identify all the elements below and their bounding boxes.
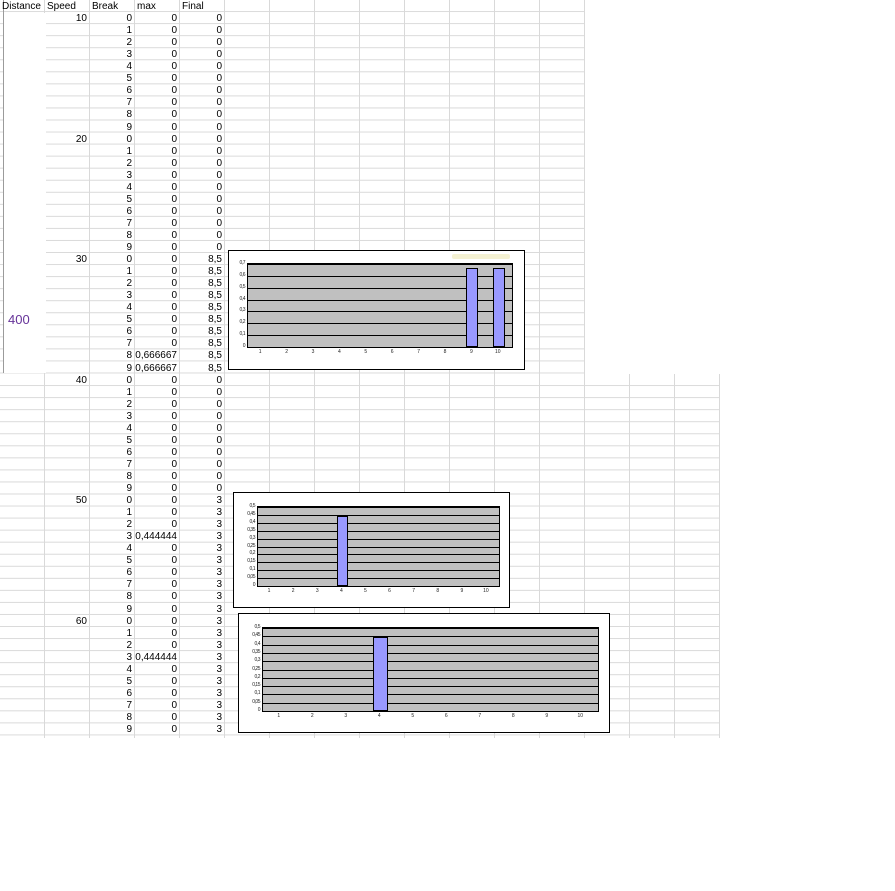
cell-final[interactable]: 8,5 bbox=[180, 290, 222, 302]
cell-final[interactable]: 8,5 bbox=[180, 363, 222, 375]
header-final[interactable]: Final bbox=[182, 1, 225, 13]
cell-final[interactable]: 0 bbox=[180, 375, 222, 387]
y-axis-tick-label: 0,7 bbox=[231, 261, 245, 266]
chart-gridline bbox=[263, 694, 598, 695]
chart-plot-area bbox=[257, 506, 500, 587]
cell-max[interactable]: 0 bbox=[135, 122, 177, 134]
chart-gridline bbox=[258, 523, 499, 524]
cell-max[interactable]: 0 bbox=[135, 495, 177, 507]
cell-final[interactable]: 0 bbox=[180, 49, 222, 61]
cell-break[interactable]: 2 bbox=[90, 278, 132, 290]
x-axis-tick-label: 3 bbox=[300, 350, 326, 355]
bar-break-4 bbox=[337, 516, 348, 586]
cell-speed[interactable]: 50 bbox=[45, 495, 87, 507]
cell-final[interactable]: 3 bbox=[180, 652, 222, 664]
cell-final[interactable]: 0 bbox=[180, 387, 222, 399]
x-axis-tick-label: 8 bbox=[432, 350, 458, 355]
cell-max[interactable]: 0 bbox=[135, 194, 177, 206]
cell-final[interactable]: 8,5 bbox=[180, 314, 222, 326]
cell-break[interactable]: 3 bbox=[90, 411, 132, 423]
y-axis-tick-label: 0,6 bbox=[231, 273, 245, 278]
chart-gridline bbox=[263, 670, 598, 671]
y-axis-tick-label: 0,3 bbox=[241, 536, 255, 541]
cell-break[interactable]: 2 bbox=[90, 37, 132, 49]
cell-max[interactable]: 0 bbox=[135, 483, 177, 495]
cell-final[interactable]: 0 bbox=[180, 447, 222, 459]
cell-break[interactable]: 6 bbox=[90, 567, 132, 579]
chart-gridline bbox=[263, 645, 598, 646]
y-axis-tick-label: 0,5 bbox=[246, 625, 260, 630]
cell-break[interactable]: 7 bbox=[90, 700, 132, 712]
cell-break[interactable]: 7 bbox=[90, 97, 132, 109]
cell-max[interactable]: 0,444444 bbox=[135, 652, 177, 664]
cell-final[interactable]: 8,5 bbox=[180, 254, 222, 266]
cell-final[interactable]: 0 bbox=[180, 182, 222, 194]
cell-final[interactable]: 0 bbox=[180, 109, 222, 121]
cell-final[interactable]: 8,5 bbox=[180, 266, 222, 278]
cell-break[interactable]: 4 bbox=[90, 61, 132, 73]
y-axis-tick-label: 0,4 bbox=[241, 520, 255, 525]
cell-max[interactable]: 0 bbox=[135, 314, 177, 326]
cell-max[interactable]: 0 bbox=[135, 13, 177, 25]
cell-max[interactable]: 0 bbox=[135, 266, 177, 278]
cell-max[interactable]: 0 bbox=[135, 555, 177, 567]
cell-max[interactable]: 0,666667 bbox=[135, 350, 177, 362]
cell-final[interactable]: 0 bbox=[180, 399, 222, 411]
x-axis-tick-label: 9 bbox=[458, 350, 484, 355]
header-distance[interactable]: Distance bbox=[2, 1, 45, 13]
cell-max[interactable]: 0 bbox=[135, 688, 177, 700]
cell-break[interactable]: 5 bbox=[90, 676, 132, 688]
cell-final[interactable]: 0 bbox=[180, 206, 222, 218]
cell-break[interactable]: 6 bbox=[90, 85, 132, 97]
cell-max[interactable]: 0 bbox=[135, 519, 177, 531]
cell-break[interactable]: 6 bbox=[90, 326, 132, 338]
y-axis-tick-label: 0,5 bbox=[241, 504, 255, 509]
cell-max[interactable]: 0 bbox=[135, 447, 177, 459]
cell-max[interactable]: 0 bbox=[135, 290, 177, 302]
y-axis-tick-label: 0,25 bbox=[246, 667, 260, 672]
cell-break[interactable]: 0 bbox=[90, 616, 132, 628]
cell-final[interactable]: 8,5 bbox=[180, 338, 222, 350]
chart-gridline bbox=[263, 653, 598, 654]
x-axis-tick-label: 9 bbox=[530, 714, 564, 719]
cell-final[interactable]: 3 bbox=[180, 507, 222, 519]
x-axis-tick-label: 1 bbox=[257, 589, 281, 594]
cell-break[interactable]: 4 bbox=[90, 423, 132, 435]
y-axis-tick-label: 0,5 bbox=[231, 285, 245, 290]
y-axis-tick-label: 0,3 bbox=[246, 658, 260, 663]
cell-break[interactable]: 5 bbox=[90, 555, 132, 567]
cell-max[interactable]: 0 bbox=[135, 134, 177, 146]
x-axis-tick-label: 7 bbox=[463, 714, 497, 719]
cell-final[interactable]: 3 bbox=[180, 700, 222, 712]
x-axis-tick-label: 6 bbox=[378, 589, 402, 594]
cell-max[interactable]: 0 bbox=[135, 543, 177, 555]
spreadsheet-app: { "sheet": { "headers": ["Distance", "Sp… bbox=[0, 0, 895, 891]
cell-break[interactable]: 3 bbox=[90, 170, 132, 182]
x-axis-tick-label: 10 bbox=[564, 714, 598, 719]
cell-final[interactable]: 3 bbox=[180, 724, 222, 736]
x-axis-tick-label: 5 bbox=[396, 714, 430, 719]
y-axis-tick-label: 0,4 bbox=[231, 297, 245, 302]
chart-gridline bbox=[258, 547, 499, 548]
cell-final[interactable]: 0 bbox=[180, 423, 222, 435]
cell-max[interactable]: 0 bbox=[135, 158, 177, 170]
cell-max[interactable]: 0 bbox=[135, 73, 177, 85]
y-axis-tick-label: 0,3 bbox=[231, 308, 245, 313]
cell-speed[interactable]: 60 bbox=[45, 616, 87, 628]
cell-max[interactable]: 0 bbox=[135, 375, 177, 387]
cell-max[interactable]: 0 bbox=[135, 146, 177, 158]
cell-final[interactable]: 0 bbox=[180, 170, 222, 182]
cell-max[interactable]: 0 bbox=[135, 640, 177, 652]
cell-final[interactable]: 0 bbox=[180, 25, 222, 37]
x-axis-tick-label: 7 bbox=[405, 350, 431, 355]
x-axis-tick-label: 6 bbox=[379, 350, 405, 355]
cell-break[interactable]: 9 bbox=[90, 724, 132, 736]
cell-break[interactable]: 3 bbox=[90, 652, 132, 664]
y-axis-tick-label: 0 bbox=[241, 583, 255, 588]
cell-final[interactable]: 3 bbox=[180, 531, 222, 543]
x-axis-tick-label: 4 bbox=[326, 350, 352, 355]
cell-final[interactable]: 0 bbox=[180, 122, 222, 134]
chart-gridline bbox=[258, 570, 499, 571]
cell-break[interactable]: 5 bbox=[90, 435, 132, 447]
y-axis-tick-label: 0 bbox=[246, 708, 260, 713]
x-axis-tick-label: 3 bbox=[329, 714, 363, 719]
cell-break[interactable]: 1 bbox=[90, 25, 132, 37]
x-axis-tick-label: 8 bbox=[426, 589, 450, 594]
cell-break[interactable]: 2 bbox=[90, 158, 132, 170]
header-max[interactable]: max bbox=[137, 1, 180, 13]
x-axis-tick-label: 1 bbox=[262, 714, 296, 719]
cell-final[interactable]: 3 bbox=[180, 567, 222, 579]
chart-gridline bbox=[258, 539, 499, 540]
cell-final[interactable]: 0 bbox=[180, 73, 222, 85]
y-axis-tick-label: 0,25 bbox=[241, 544, 255, 549]
cell-max[interactable]: 0 bbox=[135, 109, 177, 121]
cell-break[interactable]: 4 bbox=[90, 543, 132, 555]
chart-gridline bbox=[258, 531, 499, 532]
cell-final[interactable]: 8,5 bbox=[180, 302, 222, 314]
x-axis-tick-label: 6 bbox=[430, 714, 464, 719]
cell-break[interactable]: 1 bbox=[90, 387, 132, 399]
cell-max[interactable]: 0 bbox=[135, 25, 177, 37]
y-axis-tick-label: 0,1 bbox=[241, 567, 255, 572]
y-axis-tick-label: 0 bbox=[231, 344, 245, 349]
cell-max[interactable]: 0 bbox=[135, 459, 177, 471]
cell-break[interactable]: 4 bbox=[90, 664, 132, 676]
cell-break[interactable]: 7 bbox=[90, 338, 132, 350]
cell-max[interactable]: 0 bbox=[135, 616, 177, 628]
cell-max[interactable]: 0 bbox=[135, 338, 177, 350]
cell-break[interactable]: 9 bbox=[90, 483, 132, 495]
cell-final[interactable]: 0 bbox=[180, 435, 222, 447]
x-axis-tick-label: 8 bbox=[497, 714, 531, 719]
cell-break[interactable]: 9 bbox=[90, 242, 132, 254]
cell-max[interactable]: 0 bbox=[135, 724, 177, 736]
cell-break[interactable]: 6 bbox=[90, 206, 132, 218]
cell-break[interactable]: 8 bbox=[90, 471, 132, 483]
cell-max[interactable]: 0,444444 bbox=[135, 531, 177, 543]
cell-final[interactable]: 0 bbox=[180, 218, 222, 230]
x-axis-tick-label: 2 bbox=[281, 589, 305, 594]
cell-break[interactable]: 9 bbox=[90, 122, 132, 134]
cell-max[interactable]: 0 bbox=[135, 423, 177, 435]
y-axis-tick-label: 0,15 bbox=[241, 559, 255, 564]
cell-max[interactable]: 0,666667 bbox=[135, 363, 177, 375]
cell-final[interactable]: 0 bbox=[180, 97, 222, 109]
chart-gridline bbox=[263, 628, 598, 629]
cell-max[interactable]: 0 bbox=[135, 206, 177, 218]
cell-final[interactable]: 0 bbox=[180, 146, 222, 158]
cell-break[interactable]: 4 bbox=[90, 182, 132, 194]
cell-max[interactable]: 0 bbox=[135, 387, 177, 399]
cell-break[interactable]: 3 bbox=[90, 531, 132, 543]
cell-break[interactable]: 8 bbox=[90, 591, 132, 603]
cell-break[interactable]: 2 bbox=[90, 399, 132, 411]
cell-max[interactable]: 0 bbox=[135, 326, 177, 338]
bar-break-9 bbox=[466, 268, 478, 347]
bar-break-4 bbox=[373, 637, 388, 711]
cell-max[interactable]: 0 bbox=[135, 435, 177, 447]
cell-final[interactable]: 0 bbox=[180, 483, 222, 495]
cell-max[interactable]: 0 bbox=[135, 302, 177, 314]
cell-break[interactable]: 8 bbox=[90, 712, 132, 724]
x-axis-tick-label: 5 bbox=[353, 350, 379, 355]
cell-break[interactable]: 7 bbox=[90, 579, 132, 591]
cell-max[interactable]: 0 bbox=[135, 170, 177, 182]
chart-gridline bbox=[263, 703, 598, 704]
cell-final[interactable]: 8,5 bbox=[180, 278, 222, 290]
cell-break[interactable]: 8 bbox=[90, 350, 132, 362]
cell-break[interactable]: 6 bbox=[90, 447, 132, 459]
cell-final[interactable]: 8,5 bbox=[180, 350, 222, 362]
cell-max[interactable]: 0 bbox=[135, 628, 177, 640]
cell-max[interactable]: 0 bbox=[135, 700, 177, 712]
cell-max[interactable]: 0 bbox=[135, 676, 177, 688]
chart-gridline bbox=[258, 562, 499, 563]
cell-break[interactable]: 1 bbox=[90, 507, 132, 519]
chart-faint-label bbox=[452, 254, 510, 259]
cell-max[interactable]: 0 bbox=[135, 591, 177, 603]
cell-break[interactable]: 3 bbox=[90, 49, 132, 61]
cell-max[interactable]: 0 bbox=[135, 567, 177, 579]
cell-final[interactable]: 0 bbox=[180, 230, 222, 242]
cell-final[interactable]: 0 bbox=[180, 158, 222, 170]
cell-max[interactable]: 0 bbox=[135, 218, 177, 230]
cell-break[interactable]: 2 bbox=[90, 640, 132, 652]
x-axis-tick-label: 2 bbox=[273, 350, 299, 355]
x-axis-tick-label: 9 bbox=[450, 589, 474, 594]
x-axis-tick-label: 5 bbox=[353, 589, 377, 594]
cell-max[interactable]: 0 bbox=[135, 471, 177, 483]
cell-final[interactable]: 0 bbox=[180, 242, 222, 254]
x-axis-tick-label: 10 bbox=[485, 350, 511, 355]
distance-value[interactable]: 400 bbox=[8, 312, 30, 328]
chart-gridline bbox=[258, 578, 499, 579]
y-axis-tick-label: 0,1 bbox=[231, 332, 245, 337]
cell-break[interactable]: 1 bbox=[90, 266, 132, 278]
y-axis-tick-label: 0,2 bbox=[241, 551, 255, 556]
cell-break[interactable]: 1 bbox=[90, 628, 132, 640]
cell-break[interactable]: 2 bbox=[90, 519, 132, 531]
x-axis-tick-label: 7 bbox=[402, 589, 426, 594]
x-axis-tick-label: 4 bbox=[363, 714, 397, 719]
cell-max[interactable]: 0 bbox=[135, 664, 177, 676]
x-axis-tick-label: 3 bbox=[305, 589, 329, 594]
cell-max[interactable]: 0 bbox=[135, 61, 177, 73]
chart-gridline bbox=[263, 636, 598, 637]
cell-max[interactable]: 0 bbox=[135, 37, 177, 49]
bar-chart-1[interactable]: 0,70,60,50,40,30,20,1012345678910 bbox=[228, 250, 525, 370]
chart-gridline bbox=[258, 507, 499, 508]
chart-gridline bbox=[258, 554, 499, 555]
bar-chart-2[interactable]: 0,50,450,40,350,30,250,20,150,10,0501234… bbox=[233, 492, 510, 608]
chart-gridline bbox=[258, 515, 499, 516]
cell-break[interactable]: 8 bbox=[90, 230, 132, 242]
header-break[interactable]: Break bbox=[92, 1, 135, 13]
cell-break[interactable]: 0 bbox=[90, 254, 132, 266]
x-axis-tick-label: 2 bbox=[296, 714, 330, 719]
cell-max[interactable]: 0 bbox=[135, 97, 177, 109]
cell-speed[interactable]: 40 bbox=[45, 375, 87, 387]
cell-break[interactable]: 3 bbox=[90, 290, 132, 302]
y-axis-tick-label: 0,05 bbox=[246, 700, 260, 705]
cell-final[interactable]: 3 bbox=[180, 640, 222, 652]
cell-final[interactable]: 3 bbox=[180, 495, 222, 507]
cell-final[interactable]: 3 bbox=[180, 591, 222, 603]
cell-final[interactable]: 0 bbox=[180, 134, 222, 146]
y-axis-tick-label: 0,4 bbox=[246, 642, 260, 647]
chart-plot-area bbox=[262, 627, 599, 712]
cell-final[interactable]: 0 bbox=[180, 85, 222, 97]
bar-chart-3[interactable]: 0,50,450,40,350,30,250,20,150,10,0501234… bbox=[238, 613, 610, 733]
cell-max[interactable]: 0 bbox=[135, 85, 177, 97]
cell-break[interactable]: 0 bbox=[90, 495, 132, 507]
cell-max[interactable]: 0 bbox=[135, 182, 177, 194]
cell-max[interactable]: 0 bbox=[135, 254, 177, 266]
cell-final[interactable]: 0 bbox=[180, 194, 222, 206]
cell-final[interactable]: 0 bbox=[180, 471, 222, 483]
chart-gridline bbox=[248, 264, 512, 265]
x-axis-tick-label: 10 bbox=[474, 589, 498, 594]
chart-gridline bbox=[263, 661, 598, 662]
cell-max[interactable]: 0 bbox=[135, 399, 177, 411]
cell-break[interactable]: 7 bbox=[90, 459, 132, 471]
cell-speed[interactable]: 30 bbox=[45, 254, 87, 266]
cell-break[interactable]: 0 bbox=[90, 134, 132, 146]
cell-max[interactable]: 0 bbox=[135, 278, 177, 290]
cell-final[interactable]: 3 bbox=[180, 664, 222, 676]
cell-final[interactable]: 3 bbox=[180, 688, 222, 700]
y-axis-tick-label: 0,2 bbox=[231, 320, 245, 325]
y-axis-tick-label: 0,35 bbox=[241, 528, 255, 533]
y-axis-tick-label: 0,2 bbox=[246, 675, 260, 680]
chart-plot-area bbox=[247, 263, 513, 348]
cell-max[interactable]: 0 bbox=[135, 604, 177, 616]
cell-final[interactable]: 0 bbox=[180, 459, 222, 471]
header-speed[interactable]: Speed bbox=[47, 1, 90, 13]
cell-break[interactable]: 0 bbox=[90, 13, 132, 25]
cell-break[interactable]: 9 bbox=[90, 363, 132, 375]
bar-break-10 bbox=[493, 268, 505, 347]
cell-max[interactable]: 0 bbox=[135, 579, 177, 591]
cell-max[interactable]: 0 bbox=[135, 507, 177, 519]
cell-break[interactable]: 7 bbox=[90, 218, 132, 230]
cell-break[interactable]: 1 bbox=[90, 146, 132, 158]
cell-final[interactable]: 3 bbox=[180, 604, 222, 616]
cell-final[interactable]: 3 bbox=[180, 616, 222, 628]
y-axis-tick-label: 0,35 bbox=[246, 650, 260, 655]
cell-final[interactable]: 8,5 bbox=[180, 326, 222, 338]
cell-break[interactable]: 0 bbox=[90, 375, 132, 387]
cell-break[interactable]: 8 bbox=[90, 109, 132, 121]
cell-max[interactable]: 0 bbox=[135, 230, 177, 242]
x-axis-tick-label: 4 bbox=[329, 589, 353, 594]
y-axis-tick-label: 0,15 bbox=[246, 683, 260, 688]
cell-break[interactable]: 5 bbox=[90, 194, 132, 206]
chart-gridline bbox=[263, 686, 598, 687]
cell-speed[interactable]: 10 bbox=[45, 13, 87, 25]
cell-max[interactable]: 0 bbox=[135, 411, 177, 423]
y-axis-tick-label: 0,05 bbox=[241, 575, 255, 580]
y-axis-tick-label: 0,1 bbox=[246, 691, 260, 696]
cell-final[interactable]: 3 bbox=[180, 712, 222, 724]
cell-speed[interactable]: 20 bbox=[45, 134, 87, 146]
cell-break[interactable]: 5 bbox=[90, 73, 132, 85]
cell-final[interactable]: 0 bbox=[180, 13, 222, 25]
cell-final[interactable]: 3 bbox=[180, 543, 222, 555]
cell-final[interactable]: 0 bbox=[180, 37, 222, 49]
cell-final[interactable]: 3 bbox=[180, 628, 222, 640]
x-axis-tick-label: 1 bbox=[247, 350, 273, 355]
y-axis-tick-label: 0,45 bbox=[246, 633, 260, 638]
cell-final[interactable]: 3 bbox=[180, 555, 222, 567]
cell-max[interactable]: 0 bbox=[135, 49, 177, 61]
cell-break[interactable]: 6 bbox=[90, 688, 132, 700]
cell-final[interactable]: 3 bbox=[180, 519, 222, 531]
cell-break[interactable]: 5 bbox=[90, 314, 132, 326]
cell-final[interactable]: 3 bbox=[180, 579, 222, 591]
y-axis-tick-label: 0,45 bbox=[241, 512, 255, 517]
cell-break[interactable]: 9 bbox=[90, 604, 132, 616]
cell-max[interactable]: 0 bbox=[135, 712, 177, 724]
chart-gridline bbox=[263, 678, 598, 679]
cell-break[interactable]: 4 bbox=[90, 302, 132, 314]
cell-final[interactable]: 0 bbox=[180, 61, 222, 73]
cell-max[interactable]: 0 bbox=[135, 242, 177, 254]
cell-final[interactable]: 0 bbox=[180, 411, 222, 423]
cell-final[interactable]: 3 bbox=[180, 676, 222, 688]
